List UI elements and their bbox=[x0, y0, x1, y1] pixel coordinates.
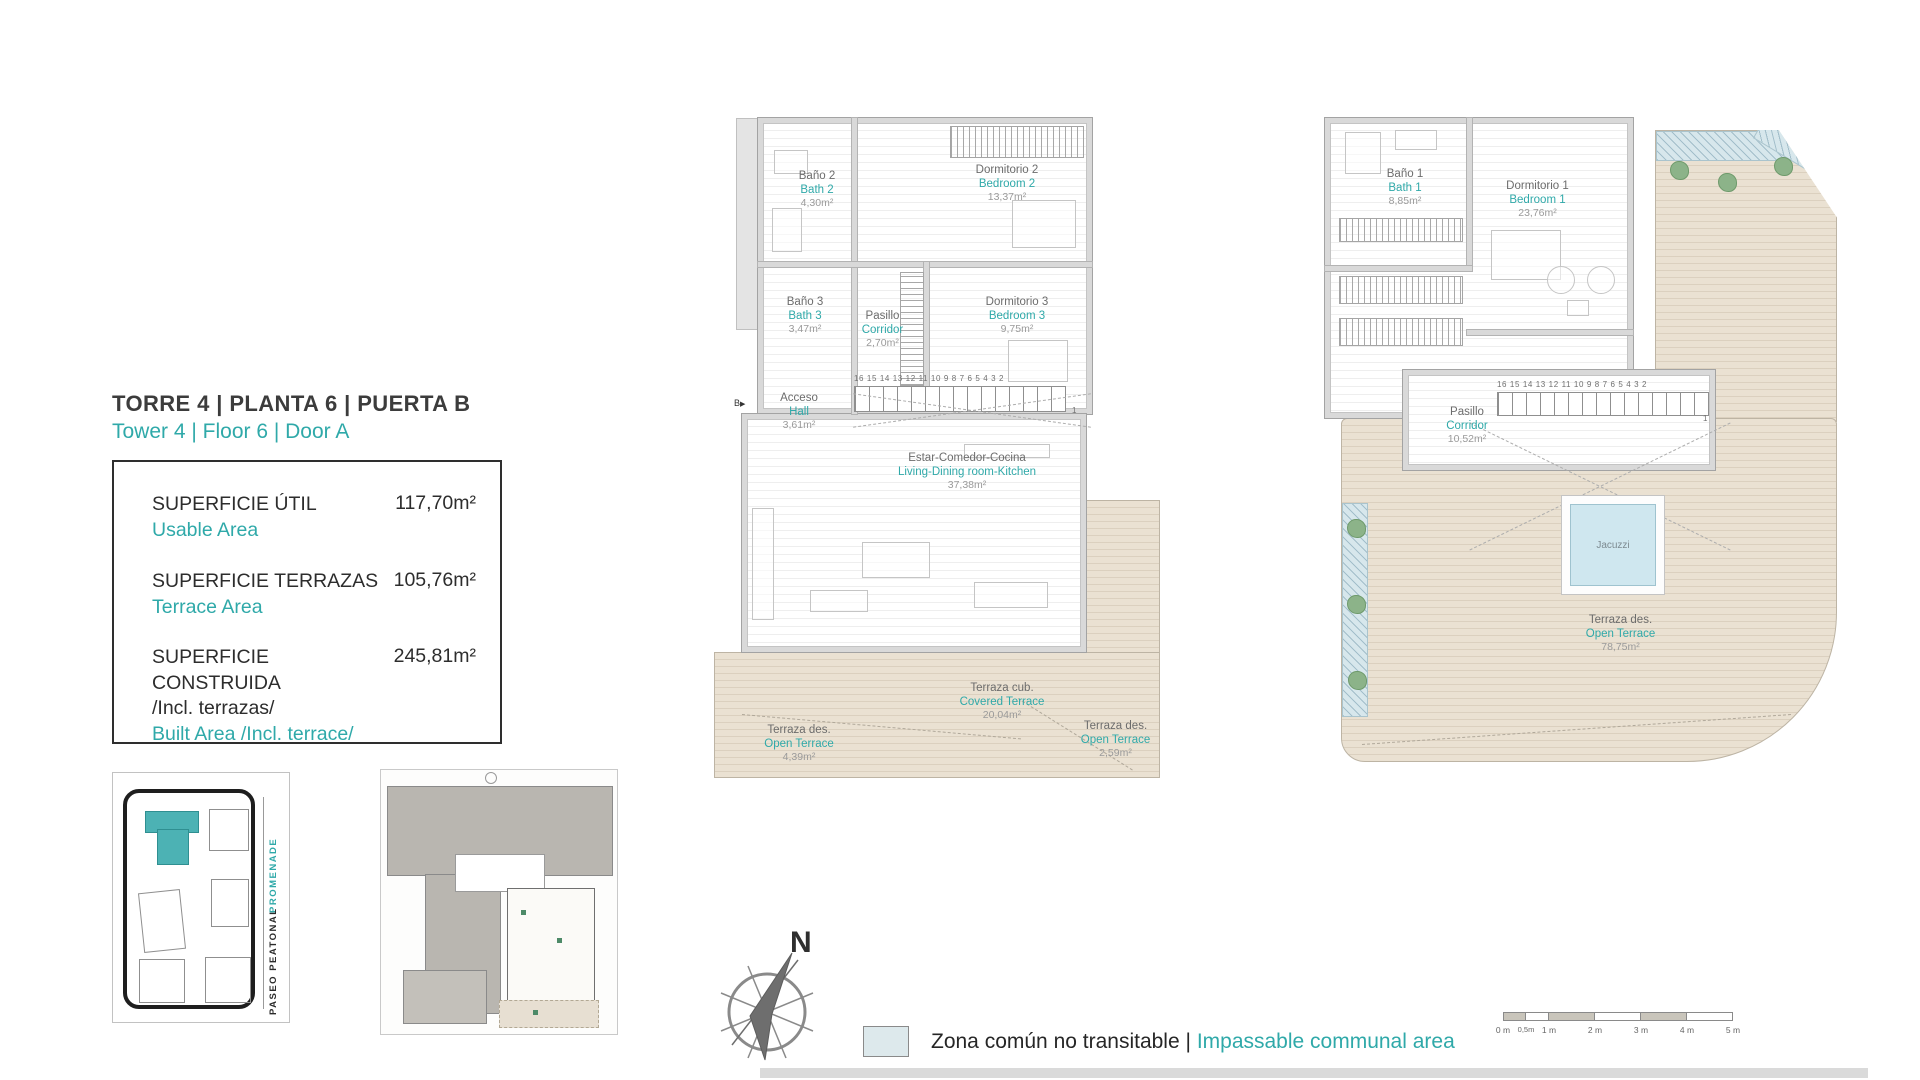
room-name-es: Baño 1 bbox=[1355, 168, 1455, 182]
area-value: 105,76m² bbox=[394, 569, 476, 592]
room-area: 3,47m² bbox=[760, 323, 850, 335]
bed-outline bbox=[1012, 200, 1076, 248]
stair-step-one: 1 bbox=[1703, 414, 1707, 423]
room-name-en: Hall bbox=[754, 406, 844, 420]
room-area: 2,70m² bbox=[840, 337, 925, 349]
lounge-chair bbox=[1587, 266, 1615, 294]
terrace-slab-right bbox=[1086, 500, 1160, 656]
plant-icon bbox=[1347, 519, 1366, 538]
street-label-promenade: PROMENADE bbox=[268, 801, 279, 913]
page-title-english: Tower 4 | Floor 6 | Door A bbox=[112, 420, 349, 444]
room-area: 78,75m² bbox=[1553, 641, 1688, 653]
building-outline bbox=[209, 809, 249, 851]
upper-floor-plan: 16 15 14 13 12 11 10 9 8 7 6 5 4 3 2 1 J… bbox=[1325, 118, 1837, 766]
scale-label: 1 m bbox=[1542, 1025, 1556, 1035]
wardrobe-hatch bbox=[1339, 318, 1463, 346]
side-table bbox=[1567, 300, 1589, 316]
room-name-es: Pasillo bbox=[840, 310, 925, 324]
main-floor-plan: 16 15 14 13 12 11 10 9 8 7 6 5 4 3 2 1 B… bbox=[712, 112, 1167, 777]
room-area: 9,75m² bbox=[957, 323, 1077, 335]
key-plan-marker bbox=[485, 772, 497, 784]
wardrobe-hatch bbox=[1339, 276, 1463, 304]
jacuzzi: Jacuzzi bbox=[1570, 504, 1656, 586]
scale-label: 2 m bbox=[1588, 1025, 1602, 1035]
area-label-es2: /Incl. terrazas/ bbox=[152, 696, 394, 721]
room-area: 3,61m² bbox=[754, 419, 844, 431]
key-plan-grey-units bbox=[403, 970, 487, 1024]
room-area: 37,38m² bbox=[862, 479, 1072, 491]
bath-fixture bbox=[1395, 130, 1437, 150]
building-outline bbox=[139, 959, 185, 1003]
north-compass: N bbox=[712, 920, 842, 1070]
scale-segment bbox=[1526, 1012, 1549, 1021]
kitchen-island bbox=[810, 590, 868, 612]
room-area: 23,76m² bbox=[1475, 207, 1600, 219]
room-area: 8,85m² bbox=[1355, 195, 1455, 207]
key-plan-green-dot bbox=[533, 1010, 538, 1015]
dining-table bbox=[862, 542, 930, 578]
room-area: 13,37m² bbox=[942, 191, 1072, 203]
room-label-pasillo: Pasillo Corridor 2,70m² bbox=[840, 310, 925, 350]
wardrobe-hatch bbox=[1339, 218, 1463, 242]
area-label-es: SUPERFICIE ÚTIL bbox=[152, 492, 317, 517]
legend-communal-swatch bbox=[863, 1026, 909, 1057]
area-label-en: Usable Area bbox=[152, 518, 317, 543]
room-area: 20,04m² bbox=[942, 709, 1062, 721]
room-name-es: Terraza des. bbox=[1553, 614, 1688, 628]
room-name-es: Baño 3 bbox=[760, 296, 850, 310]
bottom-divider-bar bbox=[760, 1068, 1868, 1078]
plant-icon bbox=[1347, 595, 1366, 614]
area-row-usable: SUPERFICIE ÚTIL Usable Area 117,70m² bbox=[152, 492, 476, 544]
room-name-es: Dormitorio 2 bbox=[942, 164, 1072, 178]
room-name-en: Bedroom 1 bbox=[1475, 194, 1600, 208]
room-label-dormitorio1: Dormitorio 1 Bedroom 1 23,76m² bbox=[1475, 180, 1600, 220]
area-value: 117,70m² bbox=[395, 492, 476, 515]
plant-icon bbox=[1718, 173, 1737, 192]
compass-north-label: N bbox=[790, 926, 812, 959]
room-label-dormitorio2: Dormitorio 2 Bedroom 2 13,37m² bbox=[942, 164, 1072, 204]
legend-separator: | bbox=[1186, 1030, 1191, 1053]
scale-segment bbox=[1641, 1012, 1687, 1021]
scale-bar: 0 m 0,5m 1 m 2 m 3 m 4 m 5 m bbox=[1503, 1012, 1733, 1042]
partition-wall bbox=[1325, 266, 1472, 271]
room-name-en: Bedroom 2 bbox=[942, 178, 1072, 192]
entrance-marker: B▶ bbox=[734, 398, 745, 408]
key-plan-corridor bbox=[455, 854, 545, 892]
floor-key-plan bbox=[380, 769, 618, 1035]
building-outline bbox=[138, 889, 186, 953]
scale-segment bbox=[1503, 1012, 1526, 1021]
partition-wall bbox=[1467, 330, 1633, 335]
room-name-en: Covered Terrace bbox=[942, 696, 1062, 710]
room-name-es: Pasillo bbox=[1417, 406, 1517, 420]
room-label-dormitorio3: Dormitorio 3 Bedroom 3 9,75m² bbox=[957, 296, 1077, 336]
scale-label: 0 m bbox=[1496, 1025, 1510, 1035]
building-outline bbox=[211, 879, 249, 927]
room-name-en: Bedroom 3 bbox=[957, 310, 1077, 324]
room-label-bano2: Baño 2 Bath 2 4,30m² bbox=[772, 170, 862, 210]
key-plan-subject-terrace bbox=[499, 1000, 599, 1028]
room-name-en: Bath 2 bbox=[772, 184, 862, 198]
legend-text: Zona común no transitable | Impassable c… bbox=[931, 1030, 1455, 1054]
area-row-built: SUPERFICIE CONSTRUIDA /Incl. terrazas/ B… bbox=[152, 645, 476, 747]
partition-wall bbox=[1467, 118, 1472, 270]
plant-icon bbox=[1348, 671, 1367, 690]
room-name-es: Terraza des. bbox=[744, 724, 854, 738]
room-label-terraza-descubierta-upper: Terraza des. Open Terrace 78,75m² bbox=[1553, 614, 1688, 654]
room-label-terraza-descubierta-1: Terraza des. Open Terrace 4,39m² bbox=[744, 724, 854, 764]
scale-label: 0,5m bbox=[1518, 1025, 1535, 1034]
entrance-arrow-icon: ▶ bbox=[740, 401, 745, 408]
room-name-en: Living-Dining room-Kitchen bbox=[862, 466, 1072, 480]
street-label-paseo-peatonal: PASEO PEATONAL bbox=[268, 915, 279, 1015]
room-name-en: Bath 3 bbox=[760, 310, 850, 324]
room-label-bano3: Baño 3 Bath 3 3,47m² bbox=[760, 296, 850, 336]
street-divider-line bbox=[263, 797, 264, 1009]
area-value: 245,81m² bbox=[394, 645, 476, 668]
room-name-en: Corridor bbox=[840, 324, 925, 338]
room-name-es: Baño 2 bbox=[772, 170, 862, 184]
building-outline bbox=[205, 957, 251, 1003]
room-area: 4,30m² bbox=[772, 197, 862, 209]
room-label-pasillo-upper: Pasillo Corridor 10,52m² bbox=[1417, 406, 1517, 446]
area-label-en: Terrace Area bbox=[152, 595, 378, 620]
legend-label-es: Zona común no transitable bbox=[931, 1030, 1180, 1053]
room-name-en: Corridor bbox=[1417, 420, 1517, 434]
site-location-map: PROMENADE PASEO PEATONAL bbox=[112, 772, 290, 1023]
staircase bbox=[1497, 392, 1709, 416]
area-row-labels: SUPERFICIE TERRAZAS Terrace Area bbox=[152, 569, 378, 621]
legend-label-en: Impassable communal area bbox=[1197, 1030, 1455, 1053]
plant-icon bbox=[1670, 161, 1689, 180]
terrace-dashed-boundary bbox=[1362, 714, 1791, 745]
stair-step-one: 1 bbox=[1072, 406, 1076, 415]
room-label-terraza-descubierta-2: Terraza des. Open Terrace 2,59m² bbox=[1068, 720, 1163, 760]
lounge-chair bbox=[1547, 266, 1575, 294]
room-area: 2,59m² bbox=[1068, 747, 1163, 759]
room-name-en: Open Terrace bbox=[744, 738, 854, 752]
room-name-es: Terraza des. bbox=[1068, 720, 1163, 734]
plant-icon bbox=[1774, 157, 1793, 176]
area-row-labels: SUPERFICIE CONSTRUIDA /Incl. terrazas/ B… bbox=[152, 645, 394, 747]
page-title-spanish: TORRE 4 | PLANTA 6 | PUERTA B bbox=[112, 391, 470, 417]
area-label-en: Built Area /Incl. terrace/ bbox=[152, 722, 394, 747]
room-area: 10,52m² bbox=[1417, 433, 1517, 445]
scale-label: 4 m bbox=[1680, 1025, 1694, 1035]
key-plan-subject-unit bbox=[507, 888, 595, 1004]
stair-step-numbers: 16 15 14 13 12 11 10 9 8 7 6 5 4 3 2 bbox=[854, 374, 1066, 383]
room-name-en: Open Terrace bbox=[1068, 734, 1163, 748]
sofa-outline bbox=[974, 582, 1048, 608]
room-name-es: Terraza cub. bbox=[942, 682, 1062, 696]
key-plan-green-dot bbox=[557, 938, 562, 943]
jacuzzi-label: Jacuzzi bbox=[1596, 540, 1629, 551]
area-label-es: SUPERFICIE TERRAZAS bbox=[152, 569, 378, 594]
key-plan-green-dot bbox=[521, 910, 526, 915]
highlighted-building-stem bbox=[157, 829, 189, 865]
room-area: 4,39m² bbox=[744, 751, 854, 763]
area-summary-box: SUPERFICIE ÚTIL Usable Area 117,70m² SUP… bbox=[112, 460, 502, 744]
stair-step-numbers: 16 15 14 13 12 11 10 9 8 7 6 5 4 3 2 bbox=[1497, 380, 1709, 389]
scale-segment bbox=[1595, 1012, 1641, 1021]
scale-label: 5 m bbox=[1726, 1025, 1740, 1035]
room-name-en: Open Terrace bbox=[1553, 628, 1688, 642]
room-name-es: Dormitorio 3 bbox=[957, 296, 1077, 310]
legend: Zona común no transitable | Impassable c… bbox=[863, 1026, 1455, 1057]
area-row-labels: SUPERFICIE ÚTIL Usable Area bbox=[152, 492, 317, 544]
bath-fixture bbox=[772, 208, 802, 252]
room-label-estar: Estar-Comedor-Cocina Living-Dining room-… bbox=[862, 452, 1072, 492]
scale-segment bbox=[1549, 1012, 1595, 1021]
room-label-bano1: Baño 1 Bath 1 8,85m² bbox=[1355, 168, 1455, 208]
exterior-wall-band bbox=[736, 118, 760, 330]
room-name-es: Estar-Comedor-Cocina bbox=[862, 452, 1072, 466]
room-name-es: Dormitorio 1 bbox=[1475, 180, 1600, 194]
area-label-es: SUPERFICIE CONSTRUIDA bbox=[152, 645, 394, 696]
room-name-en: Bath 1 bbox=[1355, 182, 1455, 196]
kitchen-counter bbox=[752, 508, 774, 620]
room-label-acceso: Acceso Hall 3,61m² bbox=[754, 392, 844, 432]
scale-label: 3 m bbox=[1634, 1025, 1648, 1035]
area-row-terrace: SUPERFICIE TERRAZAS Terrace Area 105,76m… bbox=[152, 569, 476, 621]
wardrobe-hatch bbox=[950, 126, 1084, 158]
scale-bar-segments bbox=[1503, 1012, 1733, 1021]
room-name-es: Acceso bbox=[754, 392, 844, 406]
scale-segment bbox=[1687, 1012, 1733, 1021]
room-label-terraza-cubierta: Terraza cub. Covered Terrace 20,04m² bbox=[942, 682, 1062, 722]
